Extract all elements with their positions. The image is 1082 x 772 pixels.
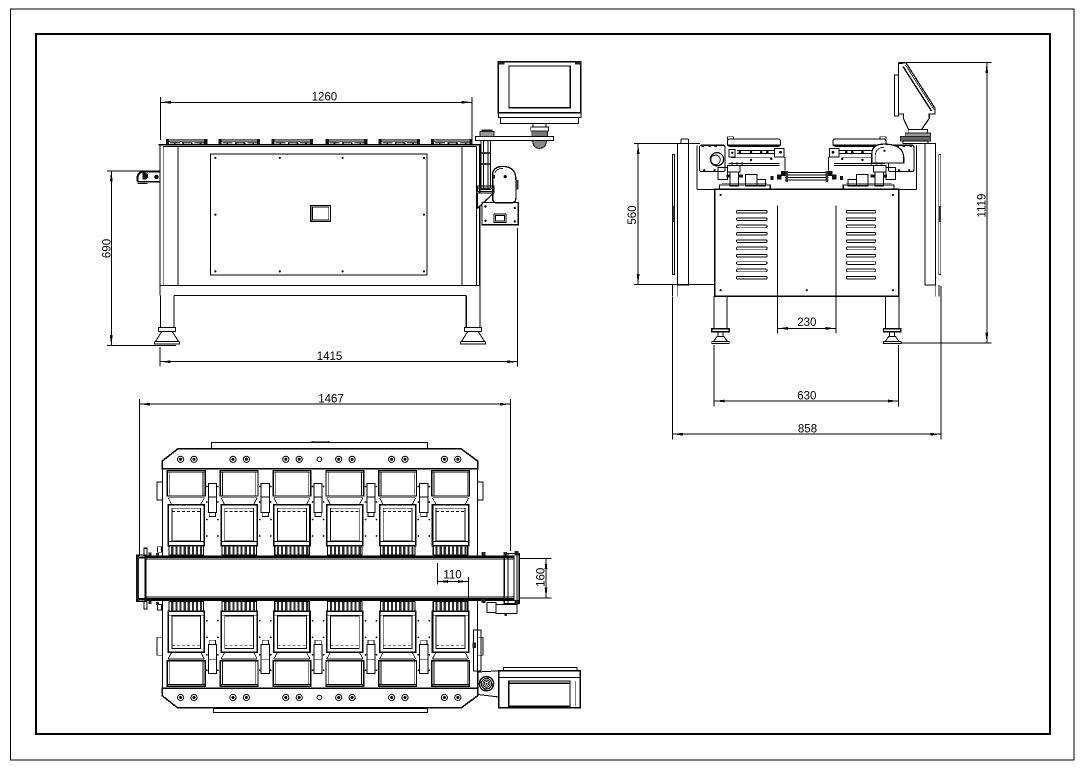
svg-text:858: 858 [798,424,817,436]
svg-text:160: 160 [535,568,547,587]
svg-text:1415: 1415 [317,351,343,363]
svg-text:630: 630 [797,390,816,402]
svg-text:690: 690 [101,239,113,258]
svg-text:110: 110 [443,570,461,582]
svg-text:1260: 1260 [312,92,338,104]
svg-text:1119: 1119 [977,194,989,218]
svg-text:1467: 1467 [318,394,344,406]
svg-text:560: 560 [627,205,639,224]
svg-text:230: 230 [797,317,816,329]
